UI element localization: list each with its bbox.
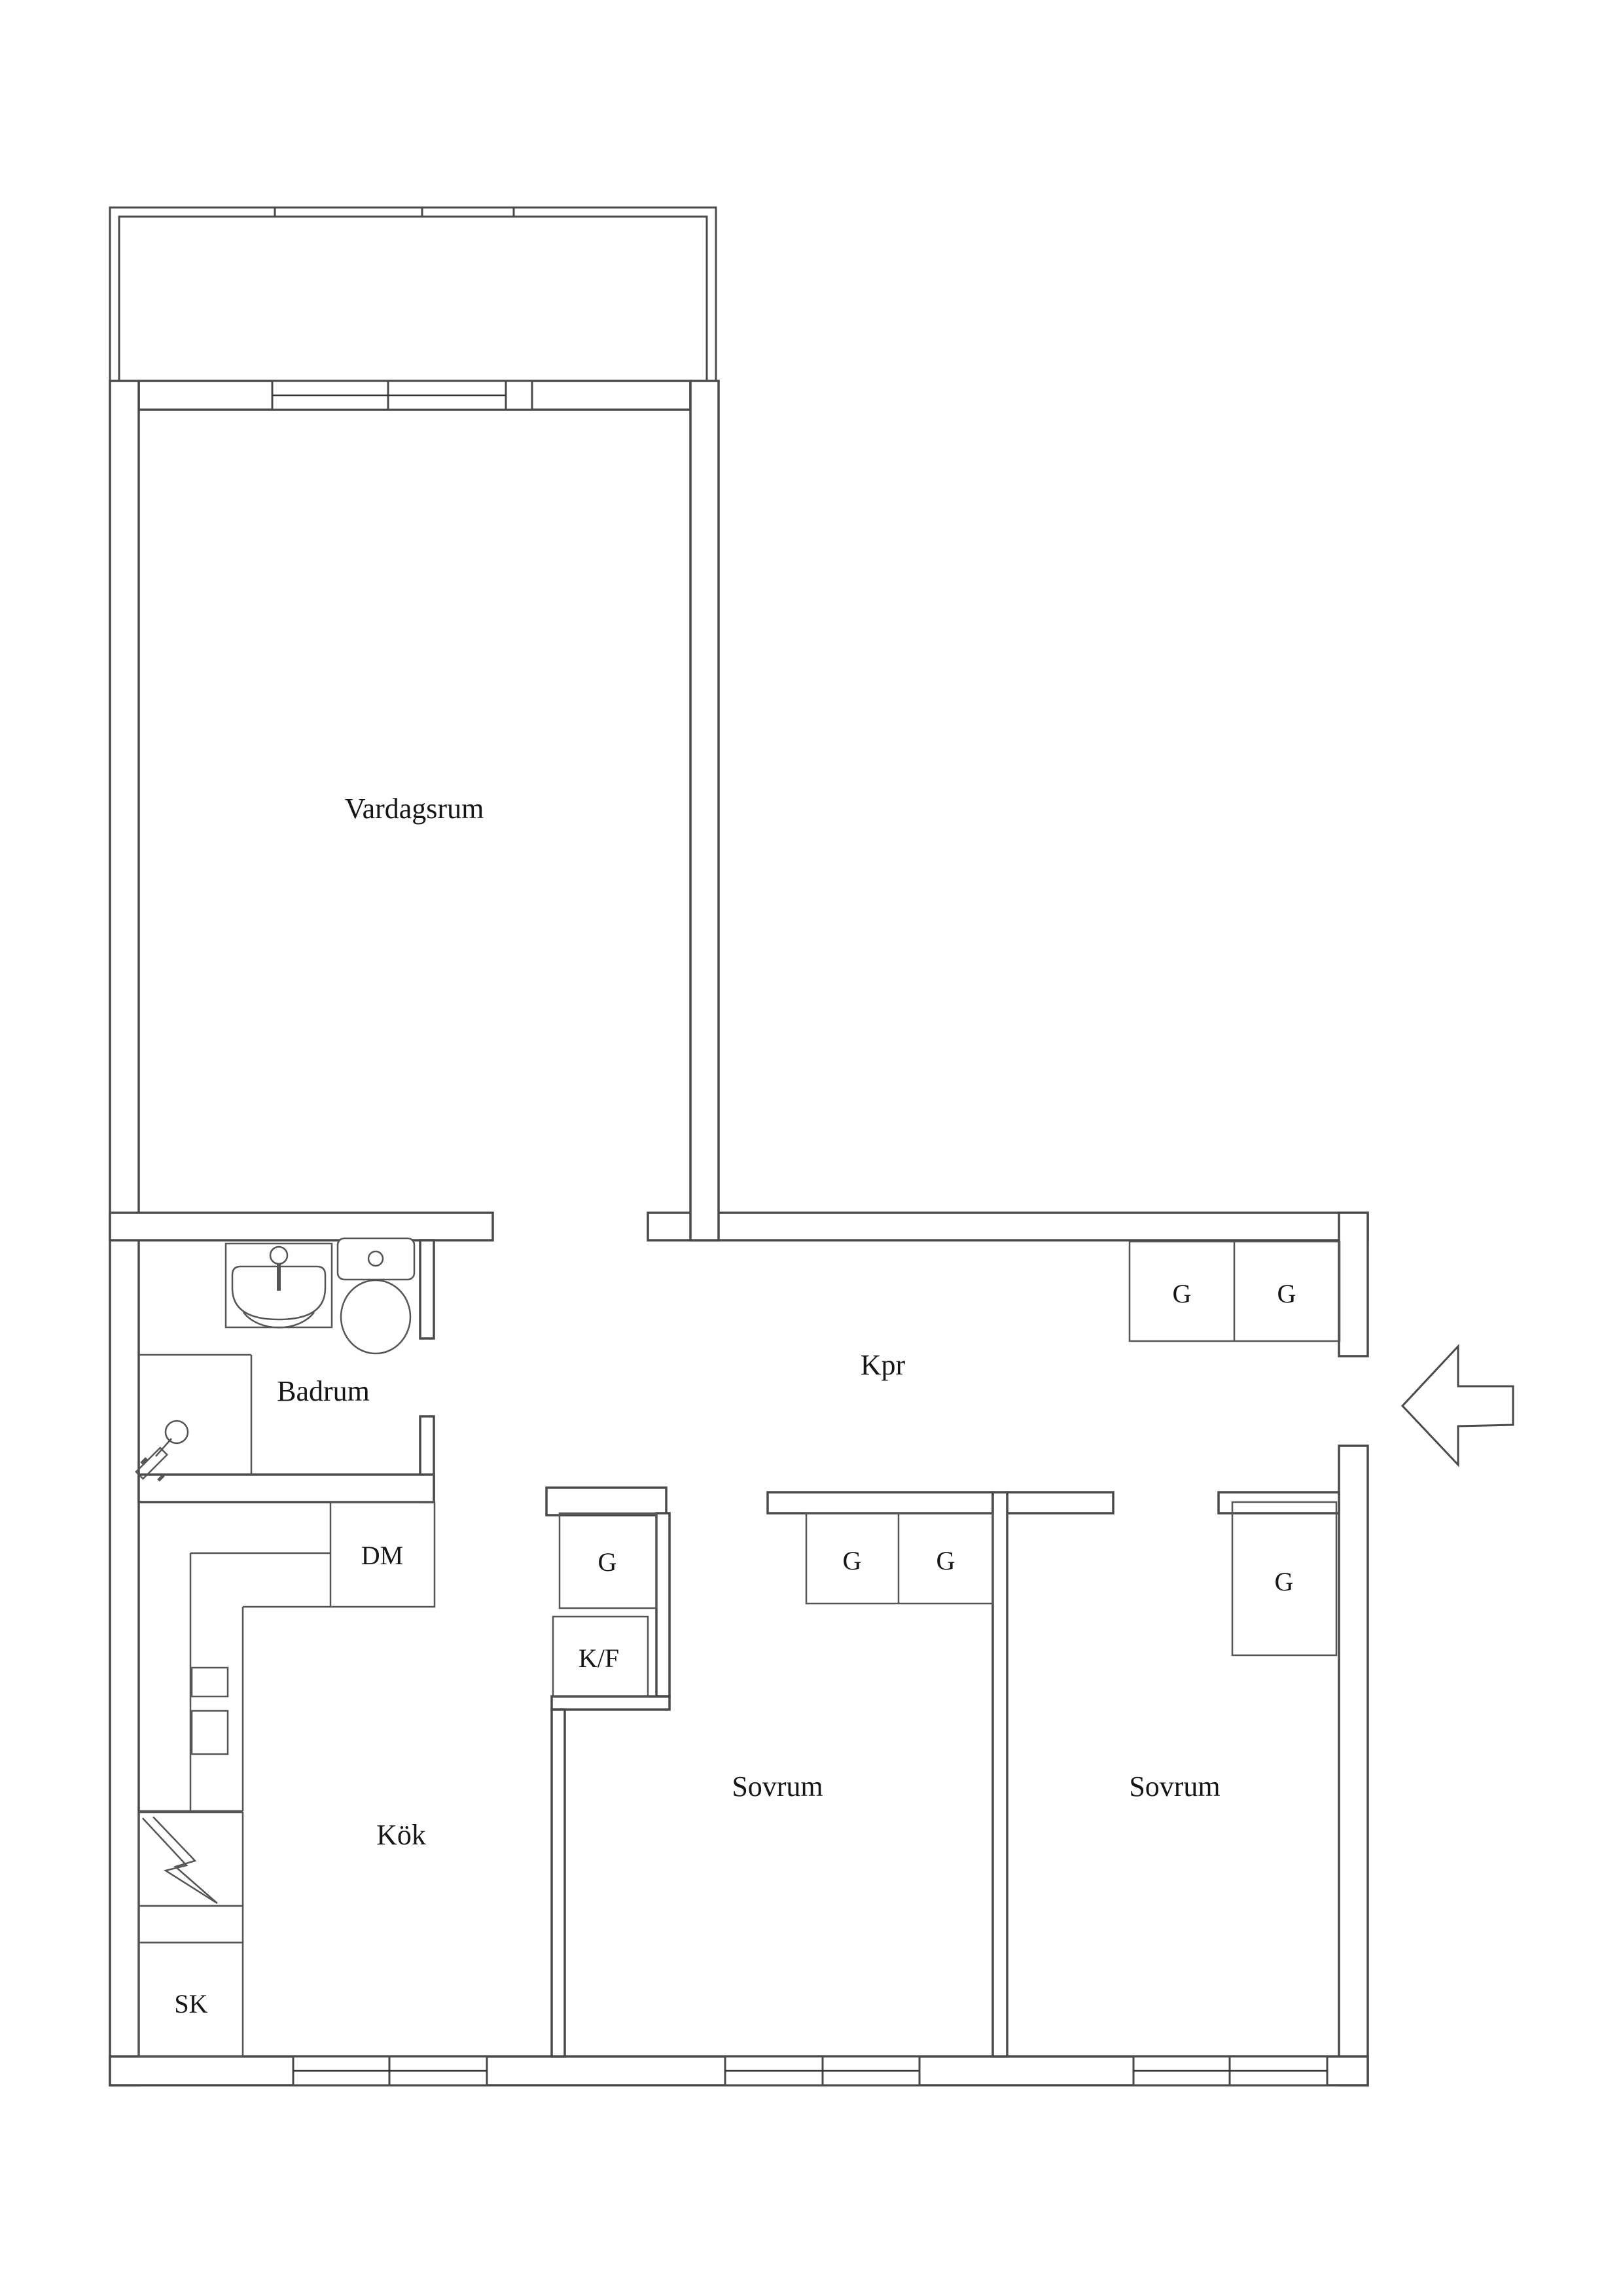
hallway-label: Kpr	[861, 1349, 906, 1381]
wall-hall-south-3	[1007, 1492, 1113, 1513]
wall-east-upper	[1339, 1213, 1368, 1356]
sink-faucet	[270, 1247, 287, 1264]
wall-east-lower	[1339, 1446, 1368, 2085]
electrical-shaft-box	[139, 1812, 243, 1906]
wall-kitchen-bedroom1-upper	[656, 1513, 669, 1696]
bedroom2-label: Sovrum	[1129, 1770, 1220, 1803]
wall-bathroom-south	[139, 1475, 434, 1502]
walls	[110, 381, 1368, 2085]
labels: Vardagsrum Badrum Kpr Kök Sovrum Sovrum …	[174, 793, 1296, 2018]
wall-north-right	[648, 1213, 1368, 1240]
wall-kitchen-bedroom1-jog	[552, 1696, 669, 1710]
shower-mixer-icon	[136, 1421, 188, 1480]
toilet-tank	[338, 1238, 414, 1280]
toilet-icon	[338, 1238, 414, 1354]
living-room-label: Vardagsrum	[345, 793, 484, 825]
hob-icon	[192, 1668, 228, 1696]
fixtures	[139, 1242, 1340, 2056]
toilet-bowl	[341, 1280, 410, 1354]
kitchen-label: Kök	[376, 1819, 426, 1851]
wall-bedroom1-bedroom2	[993, 1492, 1007, 2056]
wall-north-left	[110, 1213, 493, 1240]
hob-icon	[192, 1711, 228, 1754]
entrance-arrow-icon	[1402, 1346, 1513, 1465]
wall-hall-south-2	[768, 1492, 993, 1513]
wardrobe-hall-left-label: G	[1173, 1279, 1192, 1308]
shower-head	[166, 1421, 188, 1443]
wardrobe-bedroom1-right-label: G	[936, 1546, 955, 1575]
balcony	[110, 207, 716, 381]
shelf-box	[139, 1906, 243, 1943]
wardrobe-kitchen-label: G	[598, 1547, 617, 1577]
bathroom-label: Badrum	[277, 1375, 370, 1407]
balcony-inner-wall	[119, 217, 707, 381]
bedroom1-label: Sovrum	[732, 1770, 823, 1803]
fridge-freezer-label: K/F	[579, 1643, 619, 1673]
wardrobe-hall-right-label: G	[1277, 1279, 1296, 1308]
wall-living-east	[690, 381, 719, 1240]
floor-plan-drawing: Vardagsrum Badrum Kpr Kök Sovrum Sovrum …	[0, 0, 1623, 2296]
sink-icon	[226, 1244, 332, 1327]
wall-kitchen-bedroom1-lower	[552, 1710, 565, 2056]
wardrobe-bedroom1-box	[806, 1513, 993, 1604]
flash-icon	[153, 1817, 217, 1903]
floor-plan-page: Vardagsrum Badrum Kpr Kök Sovrum Sovrum …	[0, 0, 1623, 2296]
balcony-outer-wall	[110, 207, 716, 381]
dishwasher-label: DM	[361, 1541, 403, 1570]
wardrobe-bedroom1-left-label: G	[843, 1546, 862, 1575]
flash-icon	[143, 1818, 217, 1903]
sk-closet-label: SK	[174, 1989, 207, 2018]
wall-hall-south-1	[546, 1488, 666, 1515]
window-living-end	[506, 381, 532, 410]
wall-bathroom-right-upper	[420, 1240, 434, 1338]
wardrobe-bedroom2-label: G	[1275, 1567, 1294, 1596]
